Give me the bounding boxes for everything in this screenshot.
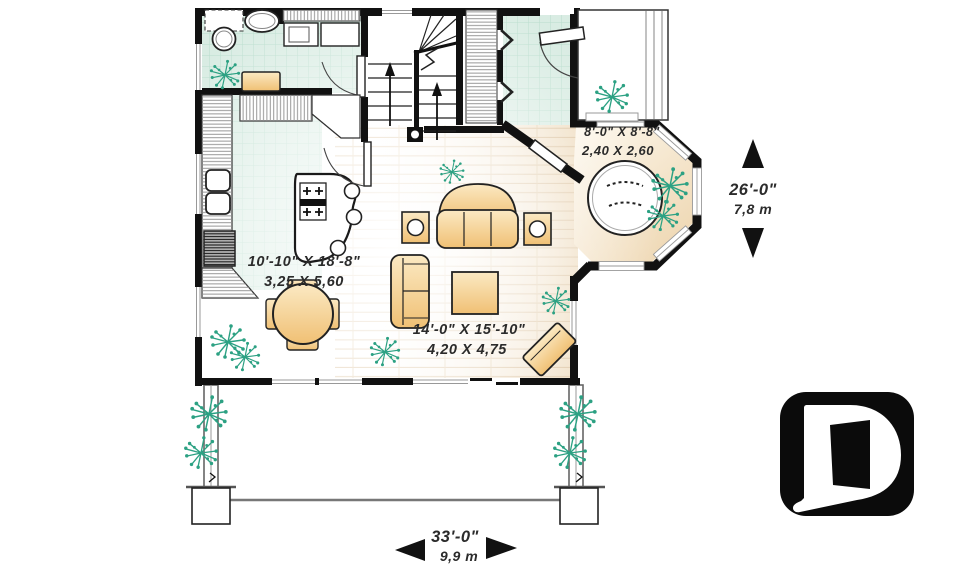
stair-bottom-wall <box>424 126 504 133</box>
laundry-counter <box>283 10 360 21</box>
dining-dim-metric: 3,25 X 5,60 <box>264 274 344 290</box>
nook-dim-metric: 2,40 X 2,60 <box>581 143 654 158</box>
dining-dim-imperial: 10'-10" X 18'-8" <box>248 254 361 270</box>
width-metric: 9,9 m <box>440 548 478 564</box>
door-leaf <box>357 56 365 97</box>
arrow-left-icon <box>395 539 425 561</box>
bottom-wall <box>195 378 580 385</box>
dining-table <box>273 284 333 344</box>
door-leaf <box>364 142 371 186</box>
bench <box>242 72 280 91</box>
lamp-icon <box>408 220 424 236</box>
floor-plan-drawing: 8'-0" X 8'-8" 2,40 X 2,60 10'-10" X 18'-… <box>0 0 960 569</box>
brand-logo <box>780 392 914 516</box>
nook-table <box>588 161 662 235</box>
stool <box>345 184 360 199</box>
dryer <box>321 23 359 46</box>
range <box>204 231 235 266</box>
left-wall-windows <box>195 44 202 337</box>
top-wall-window <box>382 8 412 16</box>
living-dim-imperial: 14'-0" X 15'-10" <box>413 322 526 338</box>
stair-rail <box>414 50 419 133</box>
closet-rod-hatch <box>466 10 497 123</box>
stool <box>347 210 362 225</box>
sofa <box>437 210 518 248</box>
lamp-icon <box>530 221 546 237</box>
kitchen-sink-icon <box>206 170 230 191</box>
stair-closet-wall <box>456 8 463 125</box>
width-imperial: 33'-0" <box>431 528 479 546</box>
kitchen-top-counter <box>240 95 312 121</box>
deck-footing-left <box>192 488 230 524</box>
front-porch <box>578 10 668 121</box>
living-dim-metric: 4,20 X 4,75 <box>426 342 507 358</box>
arrow-right-icon <box>486 537 517 559</box>
depth-imperial: 26'-0" <box>728 181 777 199</box>
floor-plan-page: 8'-0" X 8'-8" 2,40 X 2,60 10'-10" X 18'-… <box>0 0 960 569</box>
depth-metric: 7,8 m <box>734 201 772 217</box>
coffee-table <box>452 272 498 314</box>
dimension-width: 33'-0" 9,9 m <box>395 528 517 564</box>
nook-dim-imperial: 8'-0" X 8'-8" <box>584 125 660 139</box>
kitchen-sink-icon <box>206 193 230 214</box>
deck-footing-right <box>560 488 598 524</box>
